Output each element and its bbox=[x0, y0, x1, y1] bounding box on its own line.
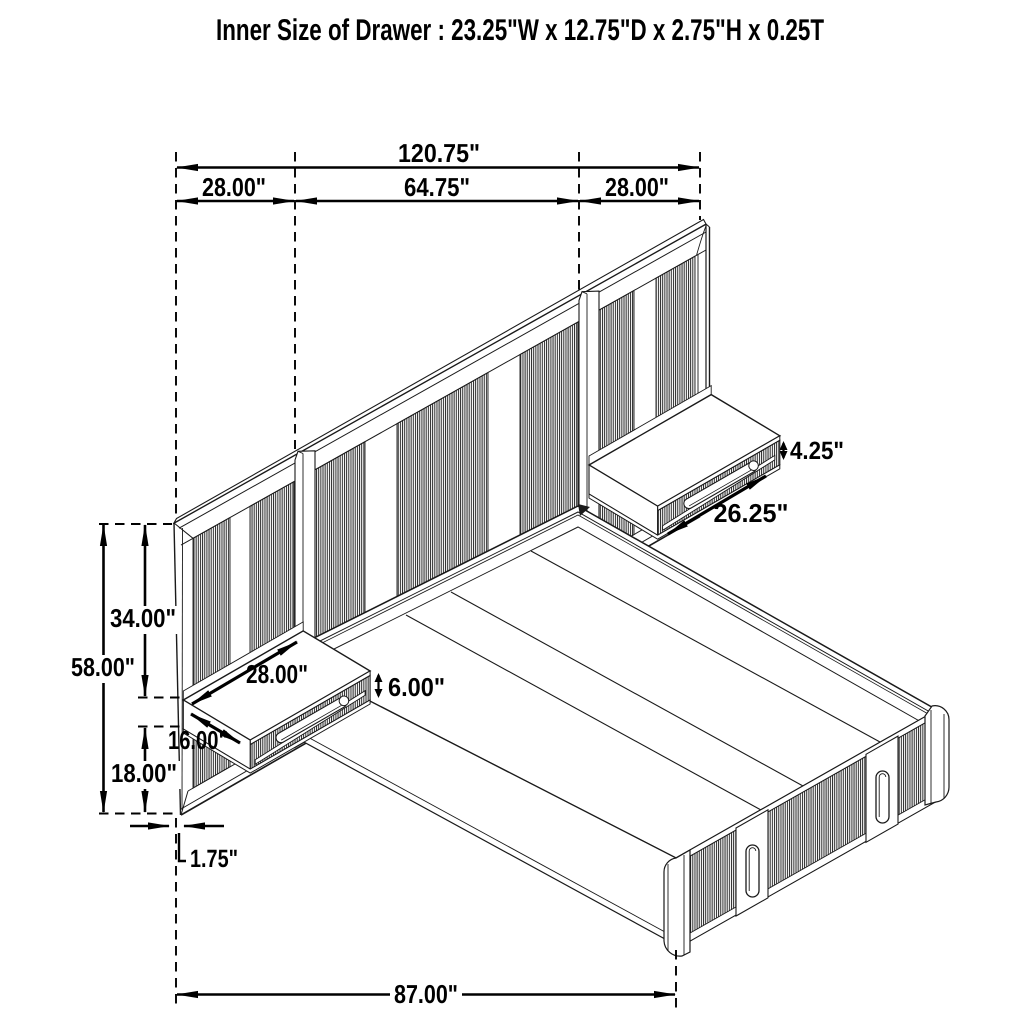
svg-text:120.75": 120.75" bbox=[398, 138, 480, 168]
svg-text:4.25": 4.25" bbox=[790, 437, 844, 465]
svg-text:Inner Size of Drawer : 23.25"W: Inner Size of Drawer : 23.25"W x 12.75"D… bbox=[216, 14, 824, 47]
svg-text:87.00": 87.00" bbox=[394, 979, 458, 1009]
svg-text:1.75": 1.75" bbox=[190, 845, 238, 873]
svg-text:28.00": 28.00" bbox=[605, 172, 669, 202]
svg-text:34.00": 34.00" bbox=[110, 603, 176, 633]
svg-text:18.00": 18.00" bbox=[111, 758, 177, 788]
svg-text:28.00": 28.00" bbox=[202, 172, 266, 202]
svg-text:16.00": 16.00" bbox=[168, 725, 228, 755]
svg-text:6.00": 6.00" bbox=[388, 672, 445, 702]
svg-text:26.25": 26.25" bbox=[714, 498, 789, 528]
svg-text:58.00": 58.00" bbox=[71, 652, 135, 682]
svg-text:28.00": 28.00" bbox=[246, 659, 308, 689]
svg-text:64.75": 64.75" bbox=[404, 172, 470, 202]
